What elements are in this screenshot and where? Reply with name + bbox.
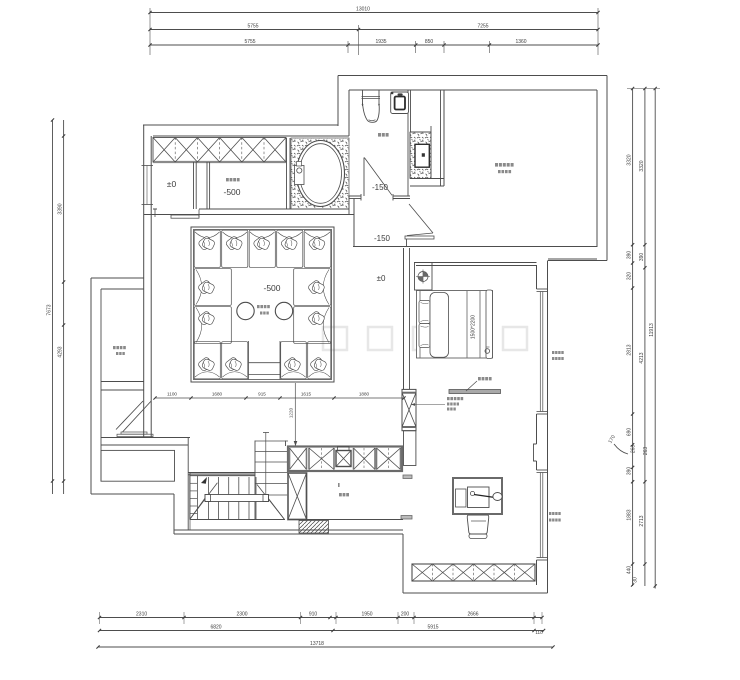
svg-text:2300: 2300 [236, 612, 247, 618]
svg-text:2310: 2310 [136, 612, 147, 618]
svg-text:13010: 13010 [356, 7, 370, 13]
svg-text:263: 263 [643, 447, 649, 456]
svg-text:1220: 1220 [289, 407, 294, 418]
svg-text:2813: 2813 [627, 344, 633, 355]
svg-text:11913: 11913 [649, 323, 655, 337]
svg-text:±0: ±0 [167, 179, 177, 189]
svg-text:850: 850 [425, 39, 434, 45]
svg-text:±0: ±0 [377, 274, 386, 283]
svg-text:110: 110 [535, 630, 543, 635]
svg-text:-150: -150 [372, 183, 389, 192]
svg-text:1935: 1935 [375, 39, 386, 45]
svg-text:30: 30 [633, 577, 639, 583]
svg-text:6820: 6820 [210, 625, 221, 631]
svg-text:2713: 2713 [639, 515, 645, 526]
svg-text:3390: 3390 [58, 203, 64, 214]
svg-text:5755: 5755 [244, 39, 255, 45]
svg-text:5755: 5755 [247, 24, 258, 30]
svg-text:2666: 2666 [467, 612, 478, 618]
svg-text:1360: 1360 [515, 39, 526, 45]
svg-text:4213: 4213 [639, 352, 645, 363]
svg-text:-150: -150 [374, 234, 391, 243]
svg-text:-500: -500 [223, 187, 240, 197]
svg-text:5915: 5915 [427, 625, 438, 631]
svg-text:1500*2200: 1500*2200 [471, 315, 477, 339]
svg-text:1615: 1615 [301, 392, 312, 397]
svg-text:200: 200 [401, 612, 410, 618]
svg-text:13718: 13718 [310, 641, 324, 647]
svg-text:1680: 1680 [212, 392, 223, 397]
svg-text:390: 390 [639, 253, 645, 262]
svg-text:915: 915 [258, 392, 266, 397]
svg-text:1883: 1883 [627, 509, 633, 520]
svg-text:320: 320 [627, 272, 633, 281]
svg-text:-500: -500 [263, 283, 280, 293]
svg-text:1950: 1950 [361, 612, 372, 618]
svg-text:690: 690 [627, 428, 633, 437]
svg-text:1880: 1880 [359, 392, 370, 397]
svg-text:390: 390 [627, 251, 633, 260]
svg-text:7255: 7255 [477, 24, 488, 30]
svg-text:7673: 7673 [47, 304, 53, 315]
svg-text:440: 440 [627, 566, 633, 575]
svg-text:390: 390 [627, 467, 633, 476]
svg-text:910: 910 [309, 612, 318, 618]
svg-text:4293: 4293 [58, 346, 64, 357]
svg-text:3320: 3320 [639, 160, 645, 171]
svg-text:263: 263 [631, 445, 637, 454]
svg-text:1100: 1100 [167, 392, 177, 397]
svg-text:3320: 3320 [627, 154, 633, 165]
